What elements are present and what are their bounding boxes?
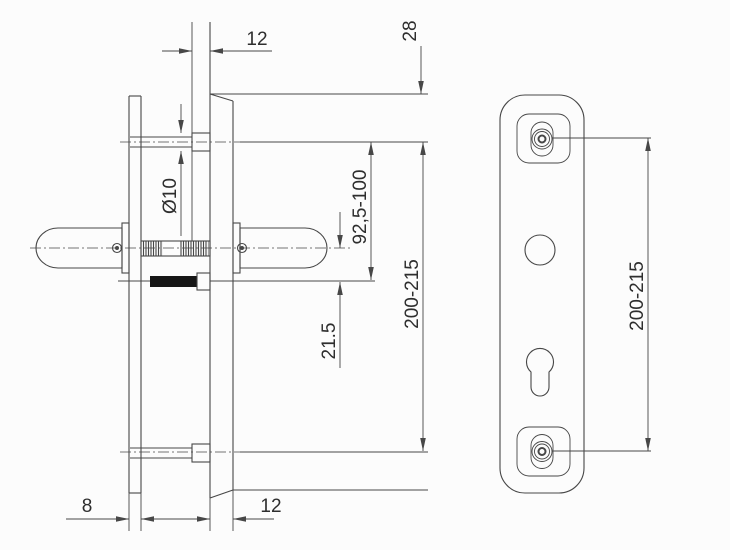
dim-screw-hole-diameter: Ø10 <box>160 104 184 236</box>
top-screw <box>517 114 570 163</box>
dim-label-200-215-front: 200-215 <box>627 261 648 331</box>
dim-fixing-centres-front: 200-215 <box>627 138 651 451</box>
technical-drawing-page: 12 28 Ø10 92,5-100 21 <box>0 0 730 550</box>
dim-spindle-projection-top: 12 <box>162 29 272 54</box>
outer-backplate-section <box>129 96 141 531</box>
dim-screw-to-cylinder: 92,5-100 <box>350 142 374 280</box>
backplate-outline <box>500 95 584 493</box>
handle-hub-hole <box>525 235 555 265</box>
dim-label-21-5: 21.5 <box>319 323 340 360</box>
spindle <box>141 241 210 256</box>
dim-label-28: 28 <box>400 20 421 41</box>
euro-cylinder-keyhole <box>527 348 554 396</box>
dim-label-200-215-side: 200-215 <box>402 259 423 329</box>
dim-plate-top-to-screw: 28 <box>400 20 424 94</box>
dim-label-o10: Ø10 <box>160 178 181 214</box>
front-view: 200-215 <box>500 95 651 493</box>
dim-label-bottom-12: 12 <box>260 496 281 517</box>
dim-fixing-centres-side: 200-215 <box>402 142 426 451</box>
cylinder-bolt <box>118 273 375 290</box>
door-handle-dimension-drawing: 12 28 Ø10 92,5-100 21 <box>0 0 730 550</box>
dim-label-top-12: 12 <box>246 29 267 50</box>
bottom-screw-boss <box>130 444 210 462</box>
door-section <box>192 22 428 531</box>
bottom-screw <box>517 427 570 476</box>
side-view: 12 28 Ø10 92,5-100 21 <box>30 20 428 531</box>
dim-plate-thickness: 8 <box>66 496 210 522</box>
dim-label-92-5-100: 92,5-100 <box>350 169 371 244</box>
dim-label-8: 8 <box>82 496 93 517</box>
